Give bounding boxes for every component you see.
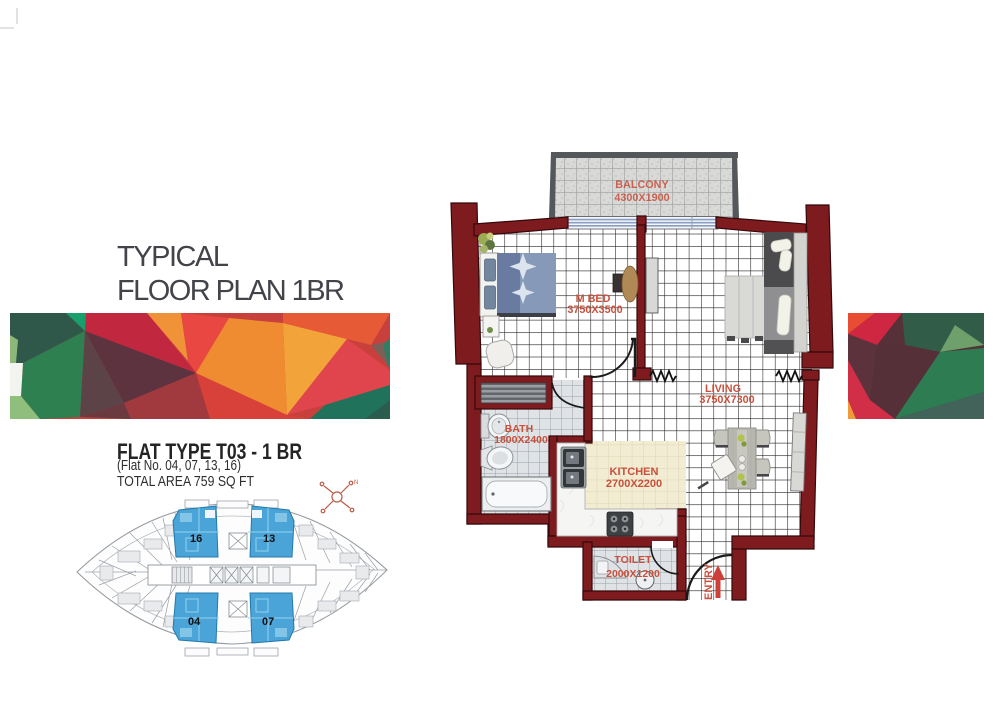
svg-text:13: 13 [263, 533, 275, 545]
svg-text:04: 04 [188, 616, 201, 628]
svg-text:N: N [354, 480, 358, 486]
svg-text:2700X2200: 2700X2200 [606, 478, 662, 490]
svg-text:ENTRY: ENTRY [703, 562, 715, 600]
svg-text:KITCHEN: KITCHEN [610, 466, 659, 478]
svg-text:4300X1900: 4300X1900 [614, 192, 669, 204]
svg-text:3750X3500: 3750X3500 [567, 304, 622, 316]
svg-text:1800X2400: 1800X2400 [494, 434, 548, 446]
svg-text:TOTAL AREA 759 SQ FT: TOTAL AREA 759 SQ FT [117, 474, 254, 490]
svg-text:BALCONY: BALCONY [615, 179, 669, 191]
svg-text:16: 16 [190, 533, 202, 545]
svg-text:TOILET: TOILET [614, 554, 652, 566]
svg-text:TYPICAL: TYPICAL [117, 241, 229, 273]
svg-text:(Flat No. 04, 07, 13, 16): (Flat No. 04, 07, 13, 16) [117, 458, 241, 474]
svg-text:2000X1200: 2000X1200 [606, 568, 660, 580]
svg-text:3750X7300: 3750X7300 [699, 394, 754, 406]
svg-text:07: 07 [262, 616, 274, 628]
svg-text:FLOOR PLAN 1BR: FLOOR PLAN 1BR [117, 275, 345, 307]
